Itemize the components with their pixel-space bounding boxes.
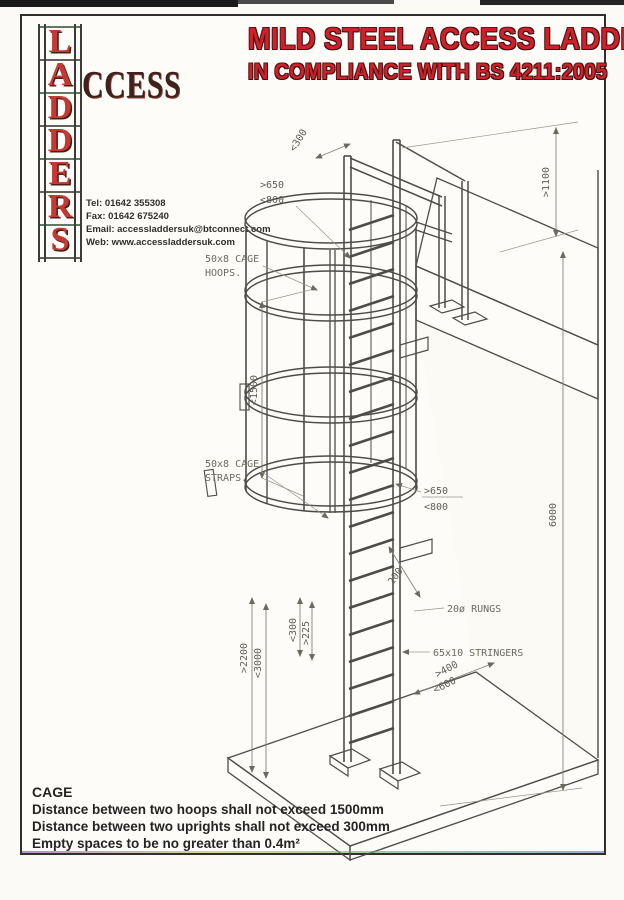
dim-top-width: <300 (288, 128, 310, 154)
cage-hoops (245, 193, 417, 512)
label-cage-hoops-2: HOOPS. (205, 268, 241, 279)
scan-color-fringe (22, 851, 604, 853)
dim-wall-height: 6000 (548, 503, 559, 527)
dim-lower-run-min: >2200 (239, 643, 250, 673)
cage-note-spaces: Empty spaces to be no greater than 0.4m² (32, 835, 390, 852)
dim-extension-height: >1100 (541, 167, 552, 197)
label-cage-straps: 50x8 CAGE (205, 459, 259, 470)
cage-note-hoops: Distance between two hoops shall not exc… (32, 801, 390, 818)
label-cage-straps-2: STRAPS. (205, 473, 247, 484)
dim-hoop-front-max: <800 (260, 195, 284, 206)
dim-hoop-spacing: <1500 (249, 375, 260, 405)
dim-lower-run-max: <3000 (253, 648, 264, 678)
cage-notes: CAGE Distance between two hoops shall no… (32, 784, 390, 852)
cage-notes-heading: CAGE (32, 784, 390, 801)
dim-rung-pitch-max: <300 (288, 618, 299, 642)
dim-hoop-front-min: >650 (260, 180, 284, 191)
label-rungs: 20ø RUNGS (447, 604, 501, 615)
isometric-ladder-drawing: <300 >650 <800 50x8 CAGE HOOPS. <1500 50… (0, 0, 624, 900)
ladder-foot-plate (330, 749, 370, 768)
scanned-datasheet-page: L A D D E R S CCESS Tel: 01642 355308 Fa… (0, 0, 624, 900)
dim-base-clear-min: >400 (434, 659, 460, 680)
label-cage-hoops: 50x8 CAGE (205, 254, 259, 265)
dim-cage-dia-min: >650 (424, 486, 448, 497)
handrail-foot-plate (430, 300, 464, 313)
label-stringers: 65x10 STRINGERS (433, 648, 523, 659)
dim-cage-dia-max: <800 (424, 502, 448, 513)
handrail-foot-plate (453, 312, 487, 325)
dim-base-clear-max: <600 (432, 675, 458, 696)
cage-note-uprights: Distance between two uprights shall not … (32, 818, 390, 835)
wall-bracket (400, 539, 432, 562)
dim-rung-pitch-min: >225 (301, 621, 312, 645)
